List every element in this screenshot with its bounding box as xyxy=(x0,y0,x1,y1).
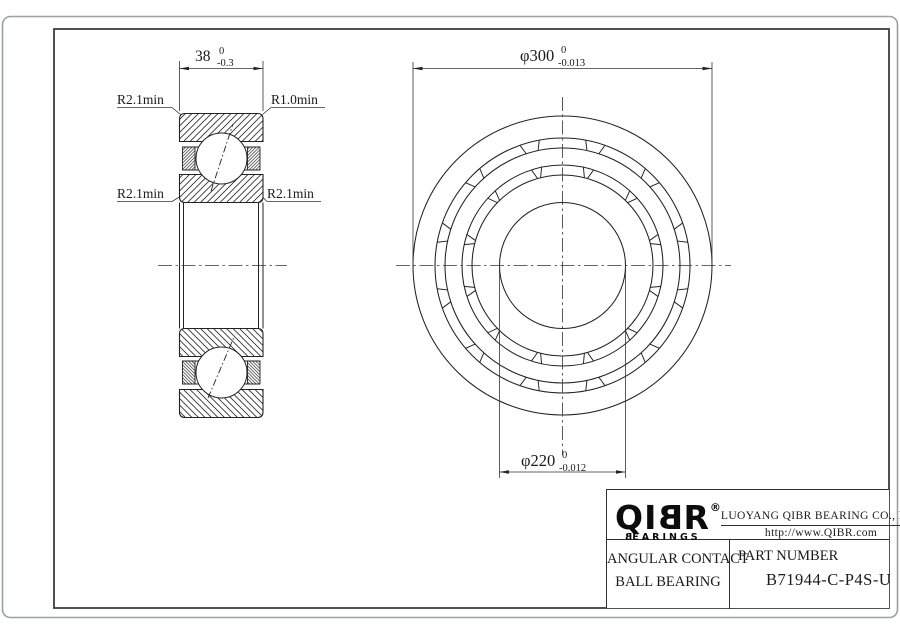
cage-pocket-line xyxy=(495,331,499,341)
cage-pocket-line xyxy=(488,328,498,332)
cage-pocket-line xyxy=(641,169,645,179)
dim-bore-tol-upper: 0 xyxy=(562,450,567,461)
arrowhead xyxy=(500,470,510,473)
cage-pocket-line xyxy=(628,198,638,202)
arrowhead xyxy=(254,67,264,70)
cage-pocket-line xyxy=(495,191,499,201)
arrowhead xyxy=(616,470,626,473)
logo-brand: QIBR® xyxy=(615,493,721,533)
cage-pocket-line xyxy=(650,244,660,245)
dim-width: 38 0 -0.3 xyxy=(180,46,264,111)
dim-bore-value: φ220 xyxy=(521,451,555,470)
cage-pocket-line xyxy=(442,223,450,229)
cage-pocket-line xyxy=(674,302,682,308)
cage-pocket-line xyxy=(625,191,629,201)
cage-pocket-line xyxy=(442,302,450,308)
company-info-cell: LUOYANG QIBR BEARING CO., LTD http://www… xyxy=(721,490,900,539)
cage-pocket-line xyxy=(586,380,587,390)
cage-pocket-line xyxy=(583,167,584,177)
cage-pocket-line xyxy=(467,234,476,240)
leader-line xyxy=(263,108,272,115)
chamfer-label-top-left: R2.1min xyxy=(117,92,164,107)
cage-pocket-line xyxy=(464,286,474,287)
cage-pocket-line xyxy=(538,380,539,390)
chamfer-label-bottom-right: R2.1min xyxy=(267,186,314,201)
cage-pocket-line xyxy=(488,198,498,202)
title-block-header-row: QIBR® BEARINGS LUOYANG QIBR BEARING CO.,… xyxy=(607,490,889,539)
cage-pocket-line xyxy=(649,290,658,296)
company-name: LUOYANG QIBR BEARING CO., LTD xyxy=(721,490,900,526)
leader-line xyxy=(172,197,180,202)
part-number-cell: PART NUMBER B71944-C-P4S-U xyxy=(729,540,891,609)
dim-outer-tol-lower: -0.013 xyxy=(558,58,585,69)
arrowhead xyxy=(703,67,713,70)
cage-pocket-line xyxy=(437,241,447,242)
cage-pocket-line xyxy=(538,140,539,150)
cage-pocket-line xyxy=(674,223,682,229)
cage-pocket-line xyxy=(541,353,542,363)
cage-pocket-line xyxy=(599,145,605,153)
cage-pocket-line xyxy=(480,353,484,363)
cage-pocket-line xyxy=(531,352,537,361)
cage-pocket-line xyxy=(587,352,593,361)
dim-bore-tol-lower: -0.012 xyxy=(559,463,586,474)
company-website: http://www.QIBR.com xyxy=(721,526,900,539)
cage-pocket-line xyxy=(437,289,447,290)
cage-pocket-line xyxy=(587,170,593,179)
cage-pocket-line xyxy=(467,290,476,296)
bearing-drawing-page: { "sheet": { "background": "#ffffff", "o… xyxy=(0,0,900,636)
cage-pocket-line xyxy=(677,241,687,242)
cage-pocket-line xyxy=(586,140,587,150)
company-logo: QIBR® BEARINGS xyxy=(607,490,721,539)
cage-pocket-line xyxy=(650,344,660,348)
cage-pocket-line xyxy=(677,289,687,290)
dim-width-tol-lower: -0.3 xyxy=(217,58,234,69)
dim-width-value: 38 xyxy=(195,48,211,65)
front-view xyxy=(396,97,731,455)
cage-pocket-line xyxy=(649,234,658,240)
cage-pocket-line xyxy=(520,377,526,385)
cage-pocket-line xyxy=(541,167,542,177)
cage-pocket-line xyxy=(531,170,537,179)
chamfer-label-bottom-left: R2.1min xyxy=(117,186,164,201)
section-view: 38 0 -0.3 R2.1min R1.0min R2.1min R2.1mi… xyxy=(117,46,325,418)
product-line2: BALL BEARING xyxy=(607,571,729,594)
cage-pocket-line xyxy=(628,328,638,332)
cage-pocket-line xyxy=(650,183,660,187)
cage-pocket-line xyxy=(583,353,584,363)
dim-width-tol-upper: 0 xyxy=(219,46,224,57)
registered-trademark-icon: ® xyxy=(710,501,721,514)
product-type-cell: ANGULAR CONTACT BALL BEARING xyxy=(607,540,729,609)
cage-pocket-line xyxy=(650,286,660,287)
arrowhead xyxy=(180,67,190,70)
part-number-value: B71944-C-P4S-U xyxy=(766,570,891,590)
chamfer-label-top-right: R1.0min xyxy=(271,92,318,107)
arrowhead xyxy=(413,67,423,70)
cage-pocket-line xyxy=(520,145,526,153)
cage-pocket-line xyxy=(641,353,645,363)
cage-pocket-line xyxy=(466,344,476,348)
title-block-detail-row: ANGULAR CONTACT BALL BEARING PART NUMBER… xyxy=(607,539,889,609)
cage-pocket-line xyxy=(466,183,476,187)
dim-outer-tol-upper: 0 xyxy=(561,45,566,56)
cage-pocket-line xyxy=(480,169,484,179)
part-number-label: PART NUMBER xyxy=(738,548,891,565)
dim-outer-value: φ300 xyxy=(520,46,554,65)
cage-pocket-line xyxy=(625,331,629,341)
cage-pocket-line xyxy=(464,244,474,245)
product-line1: ANGULAR CONTACT xyxy=(607,548,729,571)
title-block: QIBR® BEARINGS LUOYANG QIBR BEARING CO.,… xyxy=(606,489,889,608)
cage-pocket-line xyxy=(599,377,605,385)
